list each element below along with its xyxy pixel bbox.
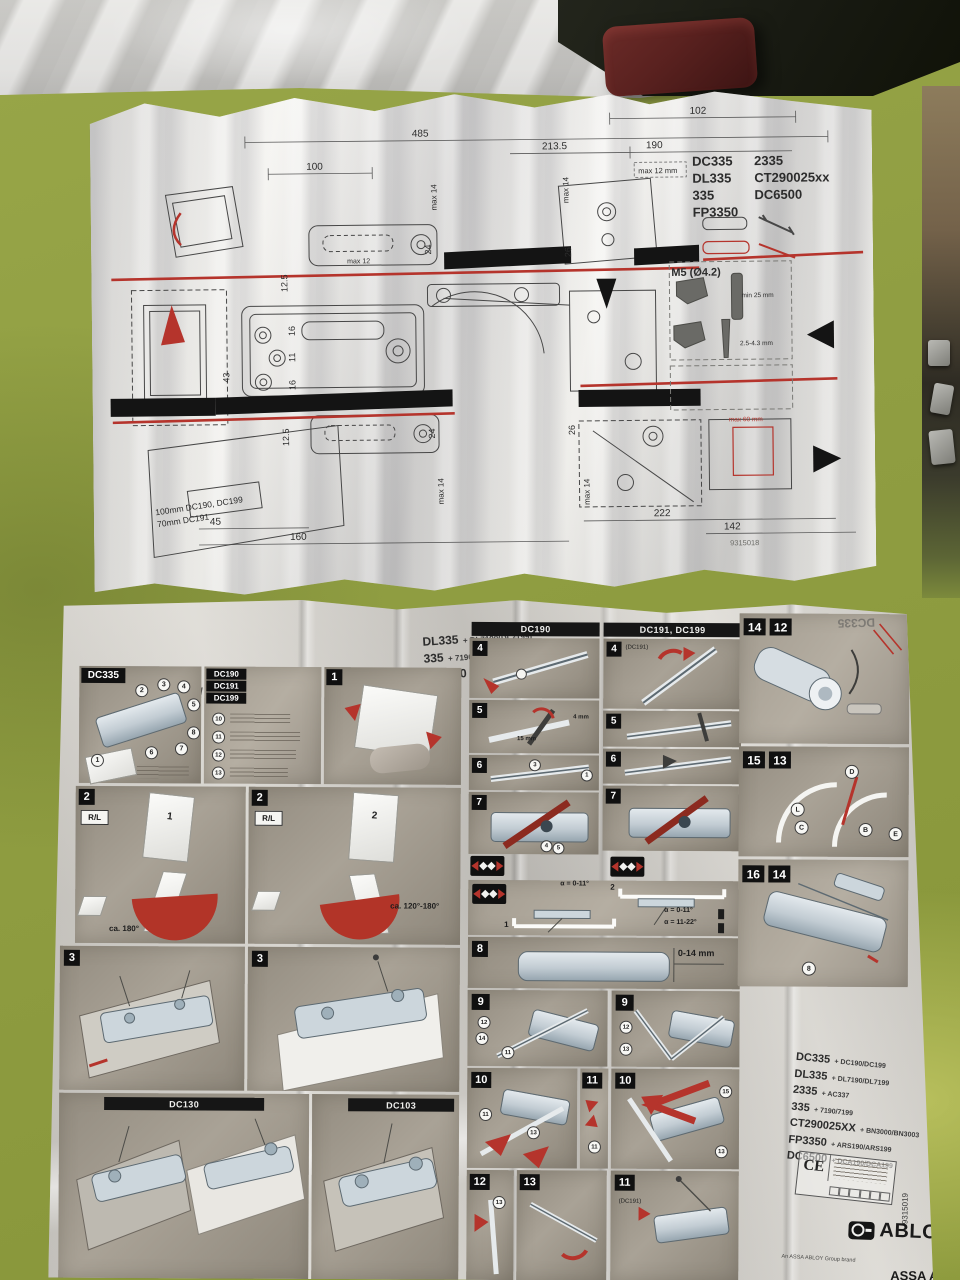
door-number: 1	[147, 809, 192, 825]
arm	[610, 1171, 739, 1280]
part-no: 14	[475, 1032, 488, 1045]
panel-parts-dc335: DC335 1 2 3 4 5 6 7 8	[79, 666, 202, 784]
svg-text:max 14: max 14	[561, 176, 570, 203]
compat-code: DL335	[422, 633, 459, 649]
panel-step-14-12: 14 12 DC335	[739, 613, 910, 744]
point-letter: D	[845, 765, 859, 779]
panel-label: DC190	[206, 668, 246, 679]
svg-text:9315018: 9315018	[730, 538, 759, 547]
ce-grid	[829, 1186, 891, 1202]
column-a-header: DC190	[472, 622, 600, 637]
panel-step-10b: 10 15 13	[611, 1069, 740, 1170]
panel-label: DC191	[206, 680, 246, 691]
svg-text:max 14: max 14	[436, 478, 445, 505]
part-no: 11	[479, 1108, 492, 1121]
svg-text:max 60 mm: max 60 mm	[729, 416, 763, 423]
panel-dc103: DC103	[311, 1094, 459, 1280]
step-number: 5	[472, 703, 487, 718]
part-no: 10	[212, 713, 225, 726]
step3-illustration	[247, 947, 460, 1092]
part-no: 7	[175, 742, 188, 755]
part-no: 13	[619, 1043, 632, 1056]
panel-step-1: 1	[324, 667, 462, 785]
panel-step-7b: 7	[602, 786, 740, 852]
frame-label: 2	[610, 883, 615, 892]
wrench-illustration	[469, 700, 599, 754]
fine-print	[230, 732, 300, 742]
part-no: 12	[212, 749, 225, 762]
door-leaf: 1	[142, 792, 195, 863]
part-no: 4	[177, 680, 190, 693]
svg-text:24: 24	[427, 428, 437, 438]
panel-step-2-right: 2 R/L 2 ca. 120°-180°	[248, 787, 461, 945]
range-dim	[468, 937, 740, 989]
step-number: 6	[472, 758, 487, 773]
abloy-key-icon	[848, 1221, 875, 1240]
alpha-label: α = 0-11°	[664, 907, 693, 914]
panel-step-7a: 7 4 5	[468, 792, 598, 855]
step-number: 2	[252, 790, 268, 806]
part-no: 3	[529, 759, 541, 771]
svg-text:2.5-4.3 mm: 2.5-4.3 mm	[740, 340, 773, 347]
svg-text:26: 26	[567, 425, 577, 435]
panel-step-4a: 4	[469, 638, 599, 699]
swing-angle-label: ca. 180°	[109, 924, 139, 933]
red-arrow	[581, 1095, 598, 1113]
part-no: 2	[135, 684, 148, 697]
compat-suffix: + BN3000/BN3003	[860, 1127, 920, 1139]
svg-text:max 14: max 14	[429, 184, 438, 211]
panel-step-11b: 11 (DC191)	[610, 1171, 739, 1280]
step-number: 2	[79, 789, 95, 805]
panel-step-2-left: 2 R/L 1 ca. 180°	[75, 786, 246, 944]
part-no: 4	[540, 840, 552, 852]
part-no: 11	[588, 1141, 601, 1154]
step3-illustration	[59, 946, 245, 1091]
svg-text:160: 160	[290, 532, 307, 543]
part-no: 3	[157, 678, 170, 691]
maroon-object	[602, 17, 759, 97]
swing-arc-red	[132, 894, 221, 943]
svg-text:max 14: max 14	[582, 478, 591, 505]
part-no: 13	[715, 1145, 728, 1158]
svg-text:190: 190	[646, 140, 663, 151]
fine-print	[230, 750, 296, 760]
panel-step-9b: 9 12 13	[611, 991, 739, 1068]
panel-step-16-14: 16 14 8	[738, 859, 909, 987]
svg-text:100: 100	[306, 162, 323, 173]
panel-step-5a: 5 15 mm 4 mm	[469, 700, 599, 754]
closer-illustration	[94, 692, 188, 749]
panel-dc130: DC130	[58, 1093, 309, 1279]
panel-parts-dc19x: DC190 DC191 DC199 10 11 12 13	[204, 666, 322, 784]
door-icon	[77, 896, 108, 916]
compat-suffix: + AC337	[821, 1090, 849, 1100]
point-letter: E	[889, 827, 903, 841]
ce-declaration-block: CE	[795, 1151, 897, 1205]
metal-part-1	[928, 340, 950, 366]
step-number: 4	[472, 641, 487, 656]
panel-step-15-13: 15 13 D L C B E	[738, 746, 909, 857]
svg-text:2335: 2335	[754, 153, 783, 168]
template-sheet	[85, 747, 138, 784]
step-number: 12	[470, 1174, 490, 1190]
point-letter: C	[795, 821, 809, 835]
step-number: 5	[606, 714, 621, 729]
door-icon	[251, 891, 282, 911]
panel-step-9a: 9 12 14 11	[467, 990, 607, 1067]
arm-illustration	[603, 639, 741, 710]
part-no: 13	[527, 1126, 540, 1139]
svg-text:DC6500: DC6500	[754, 187, 802, 202]
part-no: 6	[145, 746, 158, 759]
part-no: 8	[802, 962, 816, 976]
compat-suffix: + 7190/7199	[814, 1106, 854, 1117]
part-no: 11	[212, 731, 225, 744]
part-no: 5	[187, 698, 200, 711]
top-sheet-linework: 102 485 213.5 190 100 max 12 24 max 14 m…	[89, 88, 876, 596]
red-arrow	[426, 728, 444, 749]
rod-illustration	[603, 711, 741, 748]
tool-size-label: 4 mm	[573, 714, 589, 720]
fine-print	[230, 768, 288, 778]
ce-fine-print	[833, 1159, 889, 1185]
tool-size-label: 15 mm	[517, 736, 536, 742]
svg-text:DC335: DC335	[692, 153, 733, 168]
photo-scene: 102 485 213.5 190 100 max 12 24 max 14 m…	[0, 0, 960, 1280]
svg-text:11: 11	[287, 353, 297, 362]
svg-text:102: 102	[690, 106, 707, 117]
part-no: 12	[478, 1016, 491, 1029]
door-number: 2	[352, 809, 397, 823]
panel-label: DC335	[81, 668, 125, 683]
part-no: 5	[552, 842, 564, 854]
step-number: 3	[252, 951, 268, 967]
svg-text:45: 45	[210, 517, 222, 528]
compat-suffix: + DC190/DC199	[834, 1058, 886, 1070]
bottom-instruction-sheet: DC335 + DC190 / DC199 / DC191 DL335 + DL…	[48, 596, 937, 1280]
compat-code: 335	[791, 1100, 810, 1114]
alpha-label: α = 0-11°	[560, 880, 589, 887]
svg-text:24: 24	[423, 245, 433, 255]
svg-text:335: 335	[692, 188, 714, 203]
svg-text:M5 (Ø4.2): M5 (Ø4.2)	[671, 267, 721, 280]
panel-alpha-settings: 1 2 α = 0-11° α = 0-11° α = 11-22°	[468, 880, 740, 936]
doc-number-vertical: 9315019	[901, 1210, 910, 1224]
metal-part-3	[928, 429, 955, 465]
lever-illustration	[602, 786, 740, 852]
panel-step-6a: 6 3 1	[469, 755, 599, 791]
svg-text:213.5: 213.5	[542, 141, 568, 152]
lever-illustration	[468, 792, 598, 855]
svg-text:16: 16	[287, 380, 297, 390]
fine-print	[137, 766, 189, 778]
panel-label: DC199	[206, 692, 246, 703]
rl-badge: R/L	[255, 811, 283, 826]
panel-header: DC130	[104, 1097, 264, 1111]
compat-code: 335	[423, 651, 444, 666]
compat-code: FP3350	[788, 1133, 827, 1149]
adjust-icon	[470, 856, 504, 876]
adjust-icon	[610, 857, 644, 877]
arm-illustration	[469, 638, 599, 699]
point-letter: B	[859, 823, 873, 837]
svg-text:min 25 mm: min 25 mm	[741, 292, 773, 299]
arc-diagrams	[738, 746, 909, 857]
arm-lines	[467, 990, 607, 1067]
rl-badge: R/L	[81, 810, 109, 825]
compat-code: 2335	[792, 1084, 817, 1098]
part-no: 1	[91, 754, 104, 767]
swing-angle-label: ca. 120°-180°	[390, 901, 439, 910]
step-number: 1	[326, 669, 342, 685]
part-no: 13	[493, 1196, 506, 1209]
dc130-illustration	[58, 1110, 309, 1279]
alpha-label: α = 11-22°	[664, 919, 697, 926]
svg-text:DL335: DL335	[692, 170, 731, 185]
step-number: 6	[606, 752, 621, 767]
frame-label: 1	[504, 920, 509, 929]
part-no: 15	[719, 1085, 732, 1098]
svg-text:142: 142	[724, 521, 741, 532]
panel-step-8: 8 0-14 mm	[468, 937, 740, 989]
panel-step-13: 13	[516, 1170, 607, 1280]
compat-code: DL335	[794, 1067, 828, 1082]
svg-text:CT290025xx: CT290025xx	[754, 169, 830, 185]
step-number: 11	[582, 1072, 602, 1088]
part-no: 12	[620, 1021, 633, 1034]
part-no: 11	[501, 1046, 514, 1059]
svg-text:12.5: 12.5	[281, 428, 291, 446]
cylinder-illustration	[739, 613, 910, 744]
door-leaf: 2	[348, 792, 399, 863]
fine-print	[230, 714, 290, 724]
step-number: 4	[606, 642, 621, 657]
svg-text:222: 222	[654, 508, 671, 519]
svg-text:26: 26	[563, 247, 573, 257]
detail-lines	[738, 859, 909, 987]
svg-text:16: 16	[287, 326, 297, 336]
svg-text:12.5: 12.5	[279, 274, 289, 292]
frame-diagrams	[468, 880, 740, 936]
group-brand-line: An ASSA ABLOY Group brand	[781, 1254, 855, 1264]
panel-step-12: 12 13	[466, 1170, 514, 1280]
panel-step-4b: 4 (DC191)	[603, 639, 741, 710]
range-label: 0-14 mm	[678, 948, 715, 958]
red-arrow	[585, 1115, 602, 1133]
panel-step-5b: 5	[603, 711, 741, 748]
top-instruction-sheet: 102 485 213.5 190 100 max 12 24 max 14 m…	[89, 88, 876, 596]
svg-text:max 12 mm: max 12 mm	[638, 166, 677, 175]
svg-text:max 12: max 12	[347, 258, 370, 265]
dc103-illustration	[311, 1111, 459, 1280]
panel-step-3-right: 3	[247, 947, 460, 1092]
part-no: 1	[581, 769, 593, 781]
panel-step-3-left: 3	[59, 946, 245, 1091]
svg-text:485: 485	[412, 129, 429, 140]
svg-text:FP3350: FP3350	[693, 204, 739, 219]
hand-illustration	[369, 743, 431, 775]
panel-step-11-strip: 11 11	[580, 1068, 609, 1168]
compat-code: DC335	[795, 1051, 830, 1066]
panel-step-10a: 10 11 13	[467, 1068, 578, 1169]
column-b-header: DC191, DC199	[604, 623, 742, 638]
part-no: 13	[212, 767, 225, 780]
rod-illustration	[603, 749, 741, 785]
panel-header: DC103	[348, 1098, 454, 1112]
part-no: 8	[187, 726, 200, 739]
ce-mark: CE	[797, 1152, 831, 1181]
panel-step-6b: 6	[603, 749, 741, 785]
step-number: 3	[64, 950, 80, 966]
svg-text:43: 43	[221, 373, 231, 383]
step-number: 13	[520, 1174, 540, 1190]
model-note: (DC191)	[626, 645, 649, 651]
point-letter: L	[791, 803, 805, 817]
